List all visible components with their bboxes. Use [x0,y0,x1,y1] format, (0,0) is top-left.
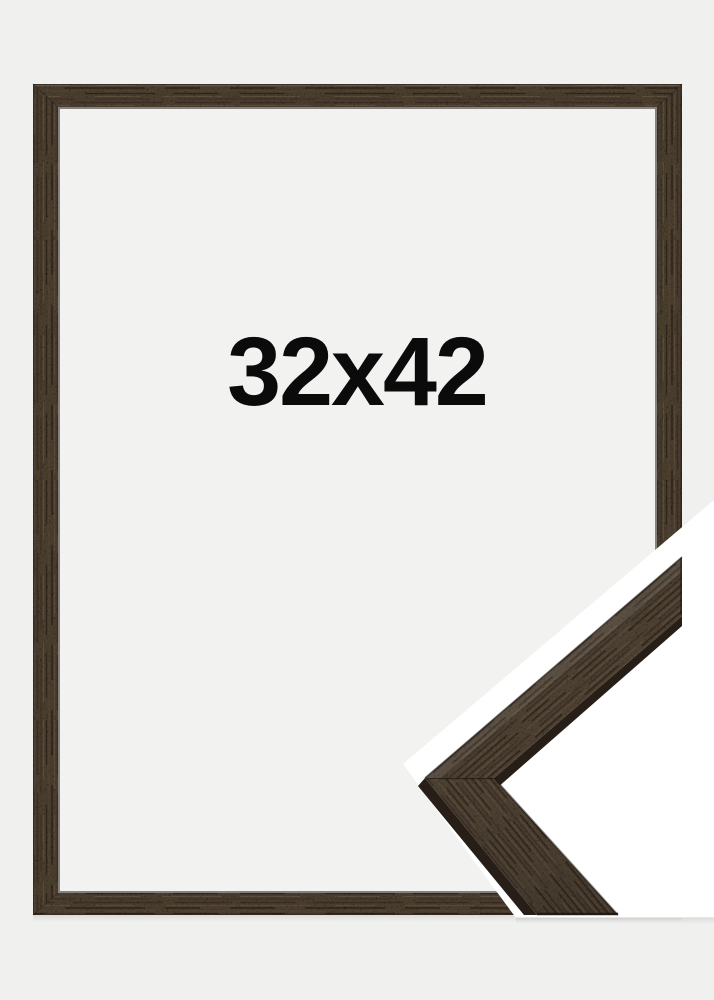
corner-sample-shadow [516,917,714,924]
frame-left-bar [33,84,58,915]
product-image: 32x42 [0,0,714,1000]
frame-top-bar [33,84,682,107]
frame-product-render: 32x42 [0,0,714,1000]
size-label: 32x42 [227,317,487,426]
